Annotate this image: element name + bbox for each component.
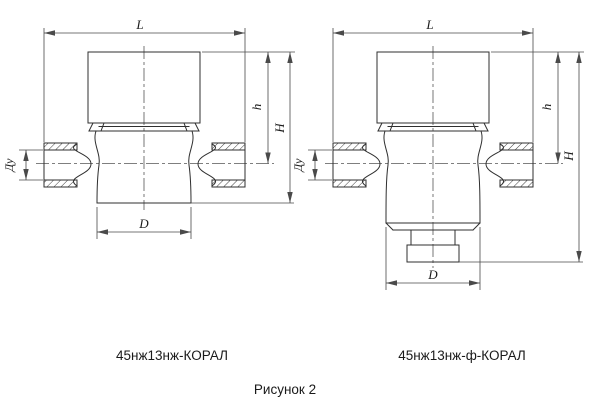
figure-2-drawing: L h H Ду D 45нж13нж-КОРАЛ — [0, 0, 600, 414]
neck-side-right — [478, 131, 482, 223]
dim-label-Dy: Ду — [291, 158, 305, 173]
left-dimension-D: D — [97, 207, 191, 239]
pipe-wall-hatch — [500, 180, 533, 187]
dim-label-D: D — [138, 216, 149, 231]
chamfer-right — [473, 223, 480, 230]
neck-side-right — [189, 131, 193, 203]
pipe-wall-hatch — [333, 143, 366, 150]
pipe-wall-hatch — [500, 143, 533, 150]
pipe-wall-hatch — [44, 143, 77, 150]
left-view-caption: 45нж13нж-КОРАЛ — [116, 348, 228, 363]
dim-label-L: L — [135, 17, 143, 32]
pipe-wall-hatch — [212, 143, 245, 150]
right-view: L h H Ду D 45нж13нж-ф-КОРАЛ — [291, 17, 584, 363]
pipe-wall-hatch — [333, 180, 366, 187]
dim-label-L: L — [425, 17, 433, 32]
left-view-body — [44, 131, 245, 203]
dim-label-H: H — [272, 123, 287, 134]
left-view: L h H Ду D 45нж13нж-КОРАЛ — [2, 17, 295, 363]
right-dimension-Dy: Ду — [291, 150, 332, 180]
pipe-wall-hatch — [44, 180, 77, 187]
dim-label-D: D — [427, 267, 438, 282]
neck-side-left — [384, 131, 388, 223]
dim-label-h: h — [539, 104, 554, 111]
chamfer-left — [386, 223, 393, 230]
dim-label-h: h — [249, 104, 264, 111]
right-view-centerlines — [325, 46, 563, 268]
right-view-caption: 45нж13нж-ф-КОРАЛ — [398, 348, 526, 363]
dim-label-Dy: Ду — [2, 158, 16, 173]
neck-side-left — [95, 131, 99, 203]
left-dimension-Dy: Ду — [2, 150, 43, 180]
dim-label-H: H — [561, 151, 576, 162]
figure-caption: Рисунок 2 — [254, 382, 316, 397]
right-dimension-D: D — [386, 227, 480, 290]
pipe-wall-hatch — [212, 180, 245, 187]
